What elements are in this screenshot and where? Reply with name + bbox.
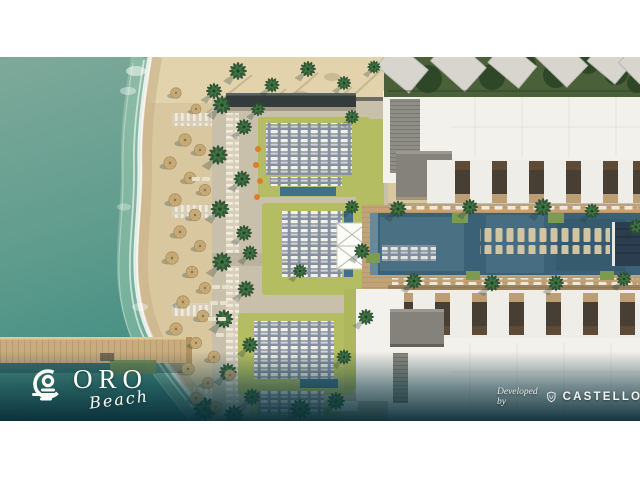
oro-sun-wave-icon xyxy=(30,366,66,402)
letterbox-bottom xyxy=(0,421,640,480)
logo-text: ORO Beach xyxy=(73,366,149,409)
castello-shield-icon xyxy=(546,390,557,404)
aerial-render: ORO Beach Developed by CASTELLO xyxy=(0,0,640,480)
roof-box xyxy=(390,309,444,347)
in-pool-daybeds xyxy=(382,245,436,261)
north-residence xyxy=(383,91,640,208)
letterbox-top xyxy=(0,0,640,57)
garden-villas xyxy=(377,57,640,97)
developed-by-label: Developed by xyxy=(497,387,540,407)
oro-beach-logo: ORO Beach xyxy=(30,366,149,409)
developer-name: CASTELLO xyxy=(563,391,640,403)
pool-terrace xyxy=(362,205,640,291)
in-pool-loungers xyxy=(480,227,610,254)
developer-credit: Developed by CASTELLO xyxy=(497,387,640,407)
poolside-loungers xyxy=(392,206,638,212)
unit-row xyxy=(427,160,640,204)
